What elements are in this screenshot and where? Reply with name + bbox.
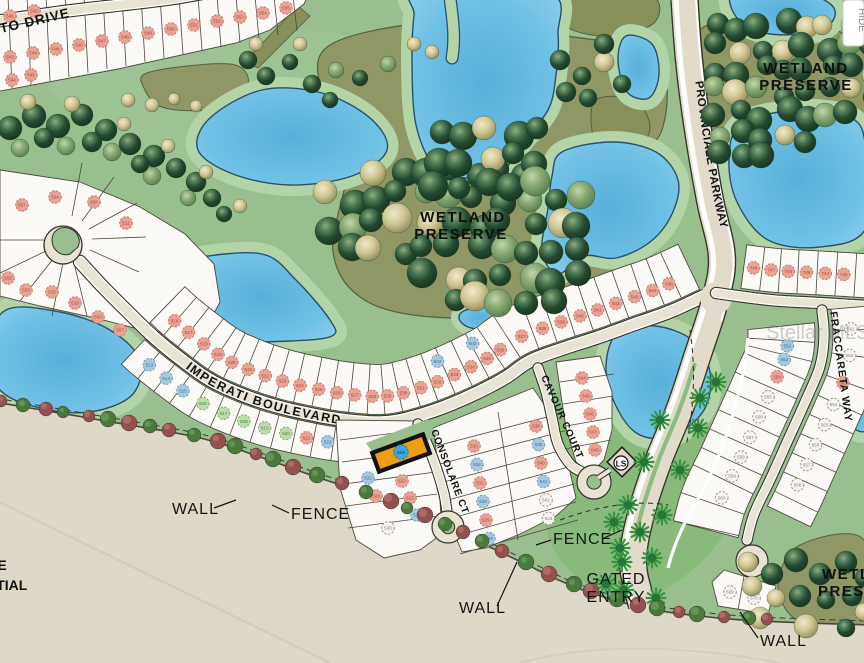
svg-text:556: 556	[755, 415, 763, 420]
svg-text:520: 520	[282, 431, 290, 436]
svg-text:518: 518	[200, 342, 208, 347]
svg-text:552: 552	[213, 19, 221, 24]
svg-text:516: 516	[199, 401, 207, 406]
svg-text:530: 530	[479, 499, 487, 504]
svg-text:544: 544	[8, 78, 16, 83]
svg-text:543: 543	[631, 294, 639, 299]
svg-text:502: 502	[469, 341, 477, 346]
svg-text:HIDE: HIDE	[856, 8, 864, 32]
svg-text:507: 507	[116, 328, 124, 333]
svg-text:530: 530	[400, 391, 408, 396]
svg-text:533: 533	[398, 479, 406, 484]
svg-text:548: 548	[121, 35, 129, 40]
svg-text:FUTURE: FUTURE	[0, 557, 7, 573]
svg-text:562: 562	[846, 353, 854, 358]
svg-text:526: 526	[397, 450, 405, 456]
svg-text:552: 552	[783, 344, 791, 349]
svg-text:521: 521	[303, 436, 311, 441]
svg-text:535: 535	[483, 356, 491, 361]
svg-text:534: 534	[467, 364, 475, 369]
svg-text:520: 520	[228, 360, 236, 365]
svg-text:539: 539	[535, 442, 543, 447]
svg-text:559: 559	[728, 474, 736, 479]
svg-text:RESIDENTIAL: RESIDENTIAL	[0, 577, 28, 593]
svg-text:748: 748	[784, 269, 792, 274]
svg-text:523: 523	[279, 379, 287, 384]
svg-text:568: 568	[794, 483, 802, 488]
svg-text:565: 565	[821, 422, 829, 427]
svg-text:503: 503	[434, 359, 442, 364]
svg-text:527: 527	[351, 393, 359, 398]
svg-text:525: 525	[315, 387, 323, 392]
svg-text:503: 503	[22, 288, 30, 293]
svg-text:526: 526	[333, 390, 341, 395]
svg-text:522: 522	[324, 440, 332, 445]
svg-text:536: 536	[496, 347, 504, 352]
svg-text:PRESERVE: PRESERVE	[759, 77, 852, 94]
svg-text:744: 744	[821, 271, 829, 276]
svg-text:GATED: GATED	[587, 571, 646, 588]
svg-text:WALL: WALL	[172, 501, 219, 518]
svg-text:553: 553	[780, 357, 788, 362]
svg-text:518: 518	[240, 419, 248, 424]
svg-text:508: 508	[90, 200, 98, 205]
svg-text:PRESERVE: PRESERVE	[818, 583, 864, 600]
svg-text:549: 549	[144, 31, 152, 36]
svg-text:517: 517	[220, 411, 228, 416]
svg-text:532: 532	[434, 379, 442, 384]
svg-text:522: 522	[364, 476, 372, 481]
svg-text:746: 746	[750, 266, 758, 271]
svg-text:749: 749	[803, 270, 811, 275]
svg-text:551: 551	[190, 23, 198, 28]
svg-text:519: 519	[261, 426, 269, 431]
svg-text:502: 502	[4, 276, 12, 281]
svg-text:531: 531	[476, 481, 484, 486]
svg-text:547: 547	[589, 430, 597, 435]
svg-text:543: 543	[545, 516, 553, 521]
svg-text:543: 543	[6, 55, 14, 60]
svg-text:558: 558	[737, 455, 745, 460]
svg-text:546: 546	[75, 43, 83, 48]
svg-text:539: 539	[557, 320, 565, 325]
svg-text:554: 554	[259, 11, 267, 16]
svg-text:745: 745	[840, 272, 848, 277]
svg-text:533: 533	[451, 372, 459, 377]
svg-text:WALL: WALL	[760, 633, 807, 650]
svg-text:544: 544	[29, 51, 37, 56]
svg-text:542: 542	[542, 498, 550, 503]
svg-text:545: 545	[27, 73, 35, 78]
svg-text:550: 550	[167, 27, 175, 32]
svg-text:538: 538	[539, 326, 547, 331]
svg-text:522: 522	[261, 373, 269, 378]
svg-text:531: 531	[417, 385, 425, 390]
svg-text:554: 554	[773, 374, 781, 379]
svg-text:557: 557	[746, 435, 754, 440]
svg-text:567: 567	[803, 462, 811, 467]
svg-text:544: 544	[578, 376, 586, 381]
svg-text:747: 747	[767, 268, 775, 273]
svg-text:515: 515	[48, 290, 56, 295]
svg-text:524: 524	[296, 383, 304, 388]
svg-text:570: 570	[750, 596, 758, 601]
svg-text:555: 555	[282, 6, 290, 11]
svg-text:541: 541	[594, 308, 602, 313]
svg-text:510: 510	[71, 301, 79, 306]
svg-text:560: 560	[718, 496, 726, 501]
svg-text:513: 513	[145, 363, 153, 368]
svg-text:519: 519	[214, 352, 222, 357]
svg-text:545: 545	[52, 47, 60, 52]
svg-text:545: 545	[665, 282, 673, 287]
svg-text:528: 528	[368, 394, 376, 399]
svg-text:569: 569	[726, 590, 734, 595]
svg-text:533: 533	[470, 444, 478, 449]
svg-text:564: 564	[830, 402, 838, 407]
svg-text:FENCE: FENCE	[291, 506, 350, 523]
svg-text:LS: LS	[616, 459, 627, 469]
svg-text:566: 566	[812, 442, 820, 447]
svg-text:548: 548	[591, 448, 599, 453]
svg-text:521: 521	[244, 367, 252, 372]
svg-text:544: 544	[649, 288, 657, 293]
svg-text:512: 512	[122, 221, 130, 226]
svg-text:530: 530	[384, 526, 392, 531]
svg-text:540: 540	[576, 314, 584, 319]
svg-text:Stellar MLS: Stellar MLS	[766, 322, 864, 344]
svg-text:532: 532	[473, 462, 481, 467]
svg-text:WETLAND: WETLAND	[763, 60, 849, 77]
svg-text:515: 515	[179, 389, 187, 394]
svg-text:555: 555	[764, 395, 772, 400]
svg-text:FENCE: FENCE	[553, 531, 612, 548]
svg-text:WETLAND: WETLAND	[420, 209, 506, 226]
svg-text:546: 546	[586, 412, 594, 417]
svg-text:532: 532	[406, 496, 414, 501]
svg-text:540: 540	[537, 461, 545, 466]
svg-text:545: 545	[582, 394, 590, 399]
svg-text:523: 523	[372, 494, 380, 499]
svg-text:WETLAND: WETLAND	[822, 566, 864, 583]
svg-text:529: 529	[482, 518, 490, 523]
svg-text:514: 514	[162, 376, 170, 381]
svg-text:504: 504	[51, 195, 59, 200]
svg-text:ENTRY: ENTRY	[587, 589, 646, 606]
svg-text:553: 553	[236, 15, 244, 20]
svg-text:507: 507	[18, 203, 26, 208]
svg-text:547: 547	[98, 39, 106, 44]
svg-text:542: 542	[612, 301, 620, 306]
svg-text:517: 517	[185, 330, 193, 335]
svg-text:529: 529	[384, 394, 392, 399]
svg-text:541: 541	[540, 479, 548, 484]
svg-text:537: 537	[518, 334, 526, 339]
svg-text:538: 538	[532, 424, 540, 429]
svg-text:503: 503	[94, 315, 102, 320]
svg-text:PRESERVE: PRESERVE	[414, 226, 507, 243]
svg-text:516: 516	[171, 318, 179, 323]
